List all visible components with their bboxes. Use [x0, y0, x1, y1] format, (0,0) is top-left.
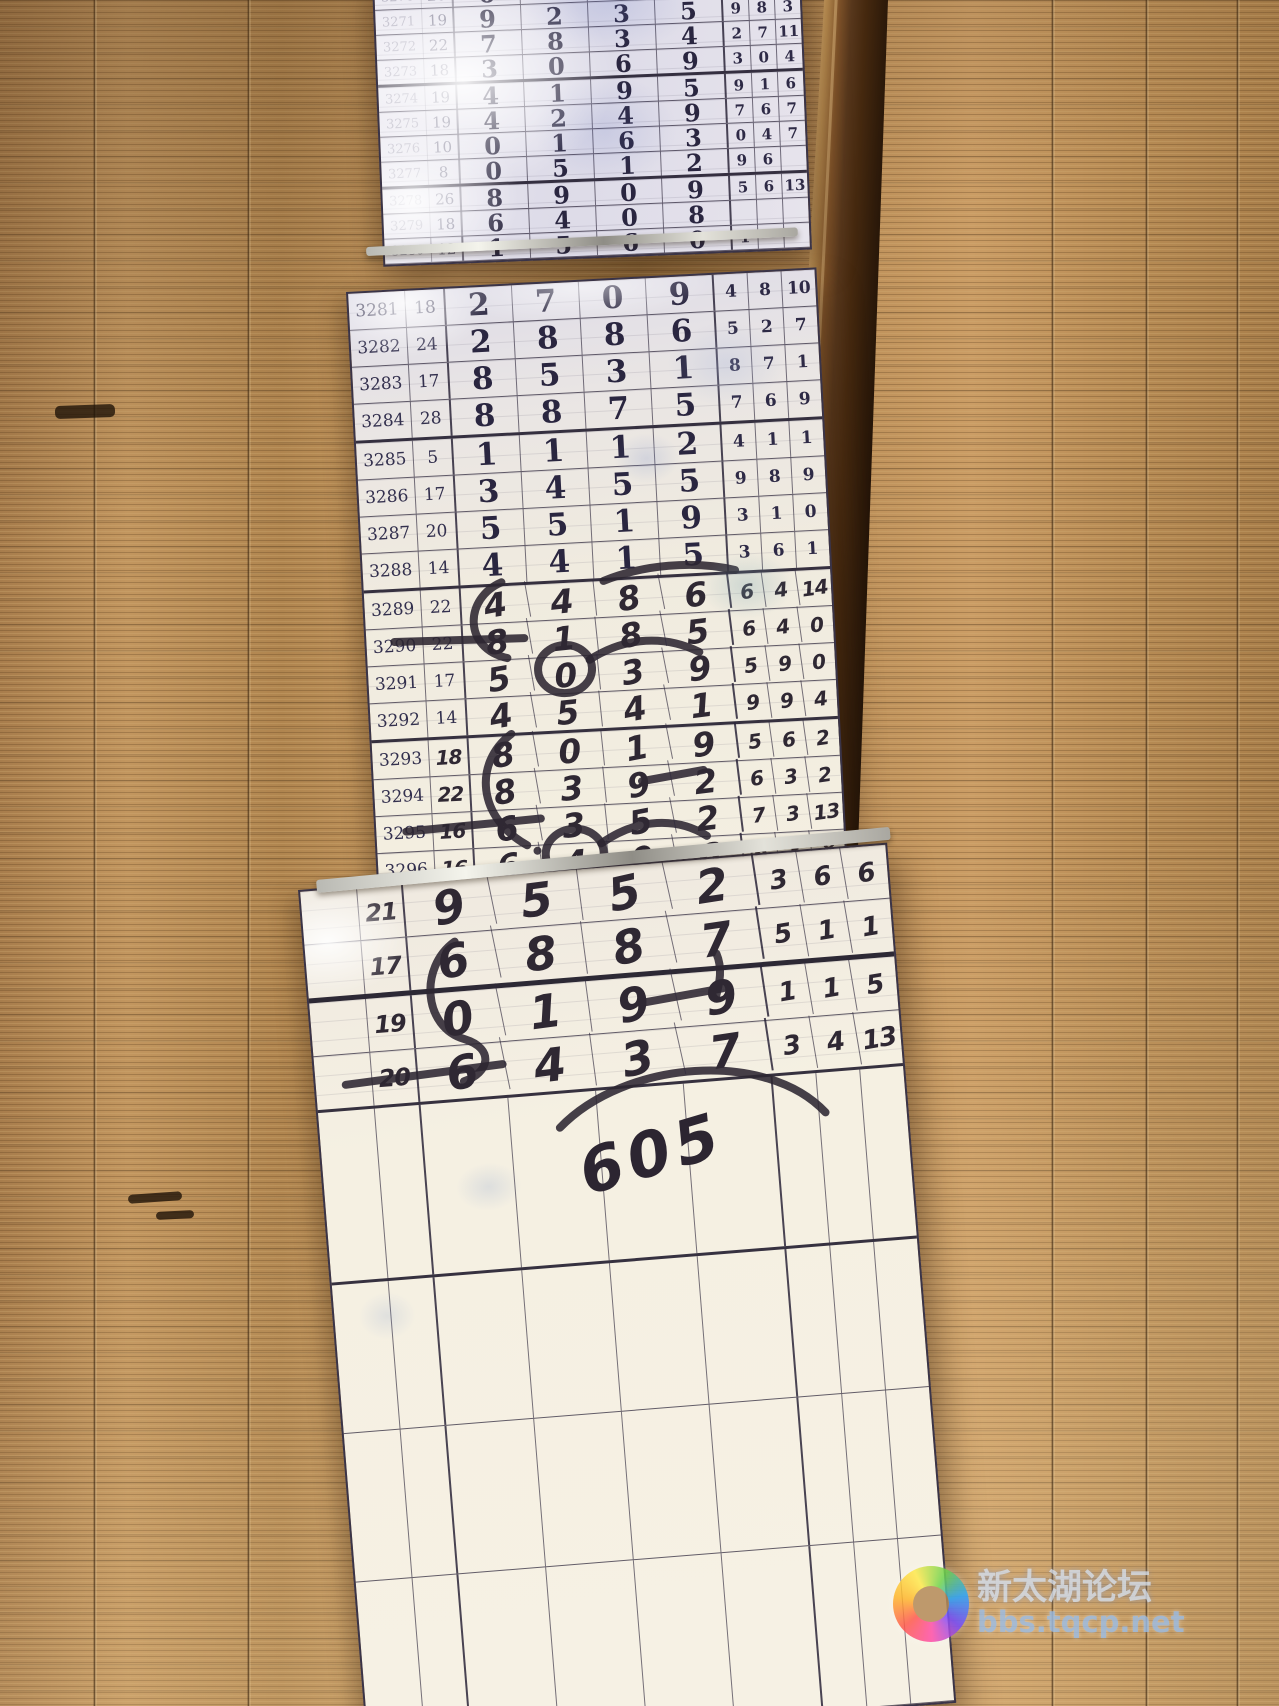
stat-cell: 5 [730, 175, 757, 200]
stat-cell: 8 [749, 0, 776, 20]
digit-cell: 5 [589, 465, 658, 504]
digit-cell: 5 [659, 535, 729, 575]
sum-value: 22 [431, 775, 473, 813]
digit-cell: 1 [520, 432, 589, 471]
lottery-chart-panel-top: 3270266497100327119923598332722278342711… [372, 0, 812, 267]
draw-id: 3285 [356, 441, 415, 480]
digit-cell: 8 [494, 921, 588, 985]
digit-cell: 2 [447, 322, 516, 361]
digit-cell: 3 [537, 766, 607, 809]
stat-cell: 4 [802, 679, 840, 719]
sum-value: 20 [417, 513, 459, 551]
digit-cell: 1 [524, 79, 592, 106]
stat-cell: 9 [726, 73, 753, 98]
sum-value: 17 [361, 937, 411, 994]
digit-cell: 9 [646, 275, 716, 315]
empty-cell [698, 1249, 799, 1404]
stat-cell: 0 [793, 493, 828, 531]
digit-cell: 8 [451, 396, 520, 435]
stat-cell: 9 [766, 643, 805, 683]
mat-seam [1236, 0, 1240, 1706]
stat-cell: 13 [782, 173, 808, 198]
digit-cell: 1 [526, 129, 594, 156]
sum-value: 18 [430, 212, 463, 237]
digit-cell: 4 [529, 206, 597, 233]
stat-cell: 1 [845, 897, 896, 956]
empty-cell [534, 1412, 634, 1567]
digit-cell: 2 [654, 425, 724, 465]
digit-cell: 4 [656, 22, 725, 49]
stat-cell: 6 [755, 147, 782, 172]
stat-cell: 2 [724, 21, 751, 46]
stat-cell: 7 [751, 345, 787, 383]
digit-cell: 8 [581, 315, 650, 354]
draw-id [313, 1053, 374, 1110]
digit-cell: 6 [590, 50, 658, 77]
draw-id: 3288 [362, 552, 421, 591]
sum-value: 18 [424, 58, 457, 83]
stat-cell: 3 [772, 756, 811, 796]
stat-cell [757, 199, 784, 224]
digit-cell: 1 [587, 428, 656, 467]
digit-cell: 9 [528, 181, 596, 208]
stat-cell: 7 [779, 96, 805, 121]
sum-value: 17 [409, 363, 451, 401]
stat-cell: 7 [783, 306, 818, 344]
stat-cell: 1 [785, 343, 820, 381]
digit-cell: 5 [658, 74, 727, 101]
sum-value: 24 [407, 326, 449, 364]
sum-value: 22 [423, 33, 456, 58]
empty-cell [446, 1419, 546, 1574]
stat-cell: 4 [714, 273, 750, 311]
sum-value: 10 [427, 135, 460, 160]
draw-id: 3271 [375, 9, 423, 35]
draw-id: 3283 [352, 365, 411, 404]
sum-value: 17 [425, 662, 467, 700]
digit-cell: 9 [591, 77, 659, 104]
stat-cell: 7 [750, 20, 777, 45]
digit-cell: 0 [595, 179, 663, 206]
stat-cell: 1 [759, 495, 795, 533]
stat-cell: 4 [721, 423, 757, 461]
digit-cell: 1 [592, 539, 661, 578]
mat-seam [1145, 0, 1149, 1706]
digit-cell: 4 [459, 546, 528, 585]
digit-cell: 3 [583, 352, 652, 391]
digit-cell: 4 [458, 107, 526, 134]
draw-id: 3287 [360, 515, 419, 554]
draw-id: 3289 [364, 590, 423, 629]
digit-cell: 3 [588, 0, 656, 26]
stat-cell: 6 [756, 174, 783, 199]
digit-cell: 5 [516, 356, 585, 395]
digit-cell: 6 [648, 312, 718, 352]
digit-cell: 9 [659, 99, 728, 126]
stat-cell [781, 146, 807, 171]
sum-value: 22 [421, 588, 463, 626]
sum-value: 28 [411, 400, 453, 438]
draw-id: 3293 [372, 740, 431, 779]
draw-id: 3290 [366, 627, 425, 666]
digit-cell: 8 [514, 319, 583, 358]
stat-cell: 6 [840, 843, 891, 902]
stat-cell: 4 [777, 44, 803, 69]
digit-cell: 6 [593, 127, 661, 154]
digit-cell: 3 [456, 55, 524, 82]
stat-cell: 5 [732, 645, 771, 685]
empty-cell [458, 1567, 559, 1706]
sum-value: 18 [429, 738, 471, 776]
stat-cell: 6 [738, 758, 777, 798]
stat-cell: 4 [754, 122, 781, 147]
draw-id: 3276 [380, 136, 428, 162]
stat-cell: 1 [755, 421, 791, 459]
digit-cell: 3 [660, 124, 729, 151]
stat-cell: 3 [774, 793, 813, 833]
draw-id: 3274 [378, 86, 426, 112]
digit-cell: 0 [596, 203, 664, 230]
sum-value: 22 [423, 625, 465, 663]
digit-cell: 5 [524, 505, 593, 544]
mat-seam [247, 0, 251, 1706]
stat-cell [783, 198, 809, 223]
stat-cell: 14 [796, 568, 834, 608]
stat-cell: 1 [789, 419, 824, 457]
stat-cell: 11 [776, 19, 802, 44]
digit-cell: 7 [455, 30, 523, 57]
draw-id: 3282 [350, 328, 409, 367]
digit-cell: 3 [538, 803, 608, 846]
draw-id: 3272 [376, 34, 424, 60]
empty-cell [610, 1256, 710, 1411]
stat-cell: 5 [736, 721, 775, 761]
digit-cell: 7 [585, 389, 654, 428]
stat-cell: 9 [723, 460, 759, 498]
stat-cell: 6 [753, 382, 789, 420]
stat-cell: 1 [795, 530, 830, 568]
digit-cell: 8 [522, 27, 590, 54]
empty-cell [634, 1553, 735, 1706]
stat-cell: 8 [748, 271, 784, 309]
digit-cell: 0 [460, 157, 528, 184]
draw-id: 3279 [383, 213, 431, 239]
digit-cell: 1 [529, 617, 599, 660]
sum-value: 19 [366, 995, 416, 1052]
stat-cell: 7 [740, 795, 779, 835]
mat-knot [55, 404, 115, 419]
photo-scene: 3270266497100327119923598332722278342711… [0, 0, 1279, 1706]
stat-cell: 7 [719, 384, 755, 422]
digit-cell: 2 [445, 285, 514, 324]
stat-cell: 13 [808, 791, 846, 831]
stat-cell: 6 [753, 97, 780, 122]
watermark-site-name: 新太湖论坛 [977, 1569, 1185, 1608]
draw-id: 3292 [370, 701, 429, 740]
sum-value: 26 [429, 187, 462, 212]
stat-cell: 8 [717, 347, 753, 385]
stat-cell: 7 [780, 121, 806, 146]
stat-cell: 6 [761, 532, 797, 570]
digit-cell: 4 [457, 82, 525, 109]
digit-cell: 0 [579, 278, 648, 317]
digit-cell: 3 [455, 472, 524, 511]
digit-cell: 9 [662, 176, 731, 203]
digit-cell: 1 [453, 435, 522, 474]
stat-cell: 6 [778, 71, 804, 96]
digit-cell: 0 [535, 730, 605, 773]
sum-value: 16 [432, 812, 474, 850]
empty-cell [622, 1405, 722, 1560]
empty-cell [522, 1263, 622, 1418]
empty-cell [435, 1270, 535, 1425]
stat-cell [731, 200, 758, 225]
draw-id: 3275 [379, 111, 427, 137]
digit-cell: 9 [454, 5, 522, 32]
digit-cell: 8 [518, 393, 587, 432]
draw-id [304, 941, 365, 998]
sum-value: 26 [421, 0, 454, 8]
sum-value: 18 [405, 289, 447, 327]
digit-cell: 5 [527, 154, 595, 181]
digit-cell: 8 [449, 359, 518, 398]
stat-cell: 9 [791, 456, 826, 494]
digit-cell: 5 [652, 386, 722, 426]
stat-cell: 9 [729, 148, 756, 173]
stat-cell: 0 [798, 605, 836, 645]
stat-cell: 2 [749, 308, 785, 346]
stat-cell: 7 [727, 98, 754, 123]
draw-id: 3278 [382, 188, 430, 214]
stat-cell: 5 [849, 955, 900, 1014]
draw-id: 3284 [354, 402, 413, 441]
draw-id: 3291 [368, 664, 427, 703]
stat-cell: 9 [734, 682, 773, 722]
sum-value: 20 [370, 1049, 420, 1106]
digit-cell: 8 [663, 201, 732, 228]
draw-id: 3273 [377, 59, 425, 85]
stat-cell: 3 [725, 497, 761, 535]
digit-cell: 3 [589, 25, 657, 52]
sum-value: 19 [425, 85, 458, 110]
stat-cell: 2 [806, 755, 844, 795]
digit-cell: 8 [461, 184, 529, 211]
digit-cell: 5 [533, 691, 603, 734]
stat-cell: 0 [751, 45, 778, 70]
digit-cell: 6 [462, 209, 530, 236]
stat-cell: 6 [770, 719, 809, 759]
mat-seam [93, 0, 97, 1706]
empty-cell [421, 1098, 522, 1275]
stat-cell: 3 [725, 46, 752, 71]
stat-cell: 0 [728, 123, 755, 148]
digit-cell: 1 [666, 683, 738, 727]
digit-cell: 1 [650, 349, 720, 389]
digit-cell: 0 [459, 132, 527, 159]
digit-cell: 4 [522, 469, 591, 508]
digit-cell: 4 [592, 102, 660, 129]
sum-value: 19 [422, 8, 455, 33]
stat-cell: 13 [854, 1009, 905, 1068]
stat-cell: 4 [764, 606, 803, 646]
empty-cell [722, 1546, 824, 1706]
empty-cell [710, 1398, 811, 1553]
sum-value: 8 [428, 160, 461, 185]
digit-cell: 0 [523, 52, 591, 79]
digit-cell: 9 [657, 498, 727, 538]
sum-value: 17 [415, 476, 457, 514]
draw-id: 3281 [348, 291, 407, 330]
stat-cell: 5 [716, 310, 752, 348]
digit-cell: 2 [525, 104, 593, 131]
lottery-chart-panel-bottom: 605 219552366176887511190199115206437341… [298, 843, 956, 1706]
draw-id: 3294 [374, 777, 433, 816]
stat-cell: 3 [775, 0, 801, 19]
stat-cell: 9 [723, 0, 750, 21]
digit-cell: 7 [512, 282, 581, 321]
stat-cell: 8 [757, 458, 793, 496]
stat-cell: 3 [727, 534, 763, 572]
digit-cell: 9 [657, 47, 726, 74]
lottery-chart-panel-middle: 3281182709481032822428865273283178531871… [346, 267, 848, 895]
watermark: 新太湖论坛 bbs.tqcp.net [893, 1566, 1185, 1642]
watermark-logo-icon [893, 1566, 969, 1642]
digit-cell: 4 [526, 542, 595, 581]
digit-cell: 4 [503, 1033, 597, 1097]
stat-cell: 6 [728, 571, 767, 611]
draw-id: 3277 [381, 161, 429, 187]
digit-cell: 1 [594, 152, 662, 179]
digit-cell: 4 [527, 580, 597, 623]
digit-cell: 5 [655, 461, 725, 501]
watermark-site-url: bbs.tqcp.net [977, 1607, 1185, 1639]
empty-cell [546, 1560, 647, 1706]
draw-id: 3286 [358, 478, 417, 517]
digit-cell: 0 [531, 654, 601, 697]
sum-value: 14 [419, 549, 461, 587]
digit-cell: 1 [591, 502, 660, 541]
digit-cell: 5 [457, 509, 526, 548]
sum-value: 21 [357, 884, 407, 941]
digit-cell: 2 [661, 149, 730, 176]
draw-id: 3295 [376, 814, 435, 853]
stat-cell: 9 [787, 380, 822, 418]
mat-seam [1051, 0, 1055, 1706]
stat-cell: 6 [730, 608, 769, 648]
digit-cell: 2 [521, 2, 589, 29]
draw-id [300, 887, 361, 944]
stat-cell: 0 [800, 642, 838, 682]
sum-value: 19 [426, 110, 459, 135]
draw-id [309, 999, 370, 1056]
stat-cell: 2 [804, 718, 842, 758]
stat-cell: 4 [762, 569, 801, 609]
stat-cell: 1 [752, 72, 779, 97]
sum-value: 5 [413, 439, 455, 477]
sum-value: 14 [427, 699, 469, 737]
stat-cell: 9 [768, 680, 807, 720]
stat-cell: 10 [782, 269, 817, 307]
